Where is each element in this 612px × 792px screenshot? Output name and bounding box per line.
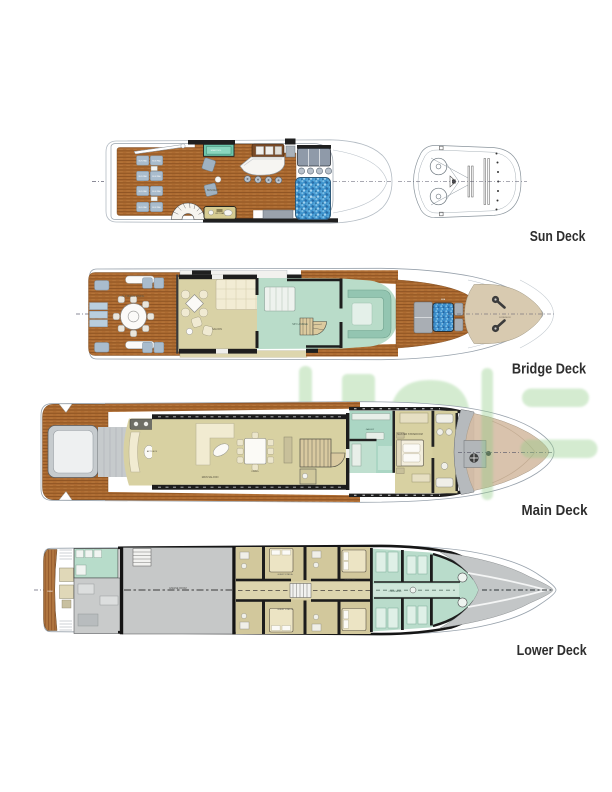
svg-text:SALOON: SALOON — [212, 328, 222, 331]
svg-text:SUN PAD: SUN PAD — [152, 160, 161, 163]
svg-text:SUN PAD: SUN PAD — [138, 175, 147, 178]
svg-text:MASTER STATEROOM: MASTER STATEROOM — [397, 433, 422, 436]
svg-text:AL FRESCO DINING: AL FRESCO DINING — [122, 295, 145, 298]
svg-text:DINING: DINING — [251, 471, 259, 473]
svg-text:Main Deck: Main Deck — [522, 503, 589, 519]
svg-text:GALLEY: GALLEY — [366, 428, 375, 431]
svg-text:SPA: SPA — [441, 298, 446, 301]
svg-text:Lower Deck: Lower Deck — [517, 643, 588, 659]
svg-text:Bridge Deck: Bridge Deck — [512, 361, 587, 377]
svg-text:Sun Deck: Sun Deck — [530, 229, 586, 245]
svg-text:SUN PAD: SUN PAD — [138, 206, 147, 209]
svg-text:SPA POOL: SPA POOL — [211, 149, 223, 152]
svg-text:WET BAR: WET BAR — [215, 212, 225, 215]
svg-text:GUEST STBD B: GUEST STBD B — [277, 609, 293, 611]
svg-text:SUN PAD: SUN PAD — [152, 190, 161, 193]
svg-text:POOL: POOL — [310, 197, 317, 199]
svg-text:SUN PAD: SUN PAD — [138, 190, 147, 193]
svg-text:FOREDECK: FOREDECK — [499, 317, 511, 319]
svg-text:SUN DECK: SUN DECK — [207, 189, 220, 192]
svg-text:GUEST STBD A: GUEST STBD A — [277, 573, 293, 576]
svg-text:AFT DECK: AFT DECK — [147, 450, 158, 453]
svg-text:SWIM: SWIM — [47, 591, 53, 593]
svg-text:SUN PAD: SUN PAD — [152, 175, 161, 178]
svg-text:CREW MESS: CREW MESS — [389, 591, 402, 593]
svg-text:GUEST VIP: GUEST VIP — [344, 579, 356, 581]
svg-text:ENGINE ROOM: ENGINE ROOM — [169, 587, 186, 590]
svg-text:SUN PAD: SUN PAD — [138, 160, 147, 163]
svg-text:SUN PAD: SUN PAD — [152, 206, 161, 209]
svg-text:MAIN SALOON: MAIN SALOON — [202, 476, 219, 479]
svg-text:SKY LOUNGE: SKY LOUNGE — [292, 323, 308, 326]
